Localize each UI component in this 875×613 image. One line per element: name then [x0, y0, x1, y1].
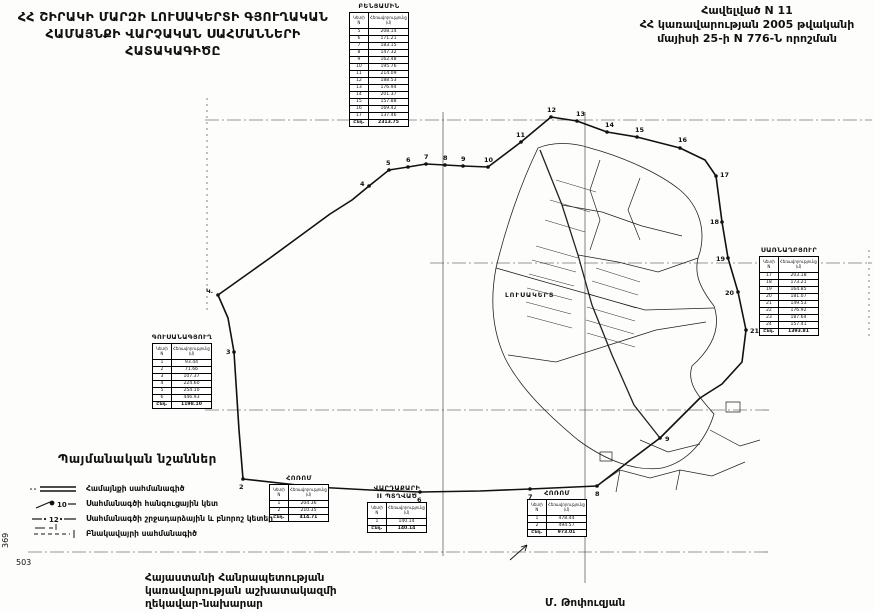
boundary-table-benyamin: ԲԵՆՅԱՄԻՆ Կետի NՀեռավորությունը (մ)5208.1…: [343, 2, 415, 127]
svg-text:20: 20: [725, 289, 735, 297]
issuer-line: ղեկավար-նախարար: [145, 598, 337, 611]
legend-item-turning-point: 12 Սահմանագծի շրջադարձային և բնորոշ կետե…: [28, 512, 273, 525]
distance-table: Կետի NՀեռավորությունը (մ)193.44271.66310…: [152, 343, 212, 409]
document-title-line: ՀԱՄԱՅՆՔԻ ՎԱՐՉԱԿԱՆ ՍԱՀՄԱՆՆԵՐԻ: [6, 25, 340, 42]
svg-text:19: 19: [716, 255, 726, 263]
settlement-parcels: [493, 144, 760, 493]
distance-table: Կետի NՀեռավորությունը (մ)1478.442494.57Ը…: [527, 499, 587, 537]
table-leader-arrow: [510, 545, 527, 560]
svg-text:16: 16: [678, 136, 688, 144]
document-title: ՀՀ ՇԻՐԱԿԻ ՄԱՐԶԻ ԼՈՒՍԱԿԵՐՏԻ ԳՅՈՒՂԱԿԱՆ ՀԱՄ…: [6, 8, 340, 59]
svg-text:4: 4: [360, 180, 365, 188]
distance-table: Կետի NՀեռավորությունը (մ)17203.1818173.2…: [759, 256, 819, 336]
map-sheet: { "header": { "title_lines": ["ՀՀ ՇԻՐԱԿԻ…: [0, 0, 875, 613]
distance-table: Կետի NՀեռավորությունը (մ)1140.14Ընդ.140.…: [367, 502, 427, 533]
table-title: ՀՈՌՈՄ: [524, 489, 590, 497]
boundary-points: Կ.2345678910111213141516171819202198765: [206, 106, 760, 504]
svg-text:7: 7: [424, 153, 429, 161]
svg-text:3: 3: [226, 348, 231, 356]
svg-text:15: 15: [635, 126, 645, 134]
boundary-table-gusanagyugh: ԳՈՒՍԱՆԱԳՅՈՒՂ Կետի NՀեռավորությունը (մ)19…: [142, 333, 222, 409]
svg-text:12: 12: [49, 516, 59, 524]
distance-table: Կետի NՀեռավորությունը (մ)5208.146171.217…: [349, 12, 409, 127]
boundary-table-vardakar: ՎԱՐԴԱՔԱՐԻ II ՊՏՂՎԱԾ Կետի NՀեռավորություն…: [358, 484, 436, 533]
document-title-line: ՀԱՏԱԿԱԳԻԾԸ: [6, 42, 340, 59]
boundary-table-horom-1: ՀՈՌՈՄ Կետի NՀեռավորությունը (մ)1204.3622…: [266, 474, 332, 522]
table-title: II ՊՏՂՎԱԾ: [358, 492, 436, 500]
signature-name: Մ. Թոփուզյան: [545, 597, 625, 609]
node-point-symbol: 10: [28, 498, 80, 510]
table-title: ՍԱՌՆԱՂԲՅՈՒՐ: [753, 246, 825, 254]
svg-text:8: 8: [443, 154, 448, 162]
table-title: ՀՈՌՈՄ: [266, 474, 332, 482]
settlement-boundary-symbol: [28, 528, 80, 540]
legend-title: Պայմանական նշաններ: [58, 452, 217, 466]
table-title: ԲԵՆՅԱՄԻՆ: [343, 2, 415, 10]
boundary-table-horom-2: ՀՈՌՈՄ Կետի NՀեռավորությունը (մ)1478.4424…: [524, 489, 590, 537]
settlement-name-label: ԼՈՒՍԱԿԵՐՏ: [505, 291, 554, 299]
svg-text:13: 13: [576, 110, 585, 118]
svg-text:17: 17: [720, 171, 729, 179]
svg-text:10: 10: [57, 501, 67, 509]
decree-reference-line: ՀՀ կառավարության 2005 թվականի: [622, 18, 872, 32]
sheet-number-vertical: 369: [1, 533, 10, 548]
svg-text:5: 5: [386, 159, 391, 167]
svg-text:8: 8: [595, 490, 600, 498]
decree-reference: Հավելված N 11 ՀՀ կառավարության 2005 թվակ…: [622, 4, 872, 46]
svg-text:12: 12: [547, 106, 556, 114]
distance-table: Կետի NՀեռավորությունը (մ)1204.362210.35Ը…: [269, 484, 329, 522]
issuer-block: Հայաստանի Հանրապետության կառավարության ա…: [145, 572, 337, 611]
svg-text:6: 6: [406, 156, 411, 164]
svg-text:Կ.: Կ.: [206, 287, 213, 295]
legend-item-label: Սահմանագծի շրջադարձային և բնորոշ կետեր: [80, 514, 273, 523]
svg-text:10: 10: [484, 156, 494, 164]
svg-text:18: 18: [710, 218, 720, 226]
svg-text:11: 11: [516, 131, 526, 139]
table-title: ԳՈՒՍԱՆԱԳՅՈՒՂ: [142, 333, 222, 341]
svg-text:14: 14: [605, 121, 615, 129]
decree-reference-line: Հավելված N 11: [622, 4, 872, 18]
legend-item-label: Բնակավայրի սահմանագիծ: [80, 529, 197, 538]
document-title-line: ՀՀ ՇԻՐԱԿԻ ՄԱՐԶԻ ԼՈՒՍԱԿԵՐՏԻ ԳՅՈՒՂԱԿԱՆ: [6, 8, 340, 25]
legend-item-settlement-boundary: Բնակավայրի սահմանագիծ: [28, 527, 197, 540]
sheet-number: 503: [16, 558, 31, 567]
svg-text:9: 9: [461, 155, 466, 163]
decree-reference-line: մայիսի 25-ի N 776-Ն որոշման: [622, 32, 872, 46]
turning-point-symbol: 12: [28, 513, 80, 525]
svg-text:2: 2: [239, 483, 244, 491]
community-boundary-symbol: [28, 483, 80, 495]
legend-item-label: Սահմանագծի հանգուցային կետ: [80, 499, 218, 508]
svg-text:9: 9: [665, 435, 670, 443]
legend-item-label: Համայնքի սահմանագիծ: [80, 484, 184, 493]
legend-item-community-boundary: Համայնքի սահմանագիծ: [28, 482, 184, 495]
legend-item-node-point: 10 Սահմանագծի հանգուցային կետ: [28, 497, 218, 510]
table-title: ՎԱՐԴԱՔԱՐԻ: [358, 484, 436, 492]
issuer-line: կառավարության աշխատակազմի: [145, 585, 337, 598]
issuer-line: Հայաստանի Հանրապետության: [145, 572, 337, 585]
boundary-table-sarnaghbyur: ՍԱՌՆԱՂԲՅՈՒՐ Կետի NՀեռավորությունը (մ)172…: [753, 246, 825, 336]
